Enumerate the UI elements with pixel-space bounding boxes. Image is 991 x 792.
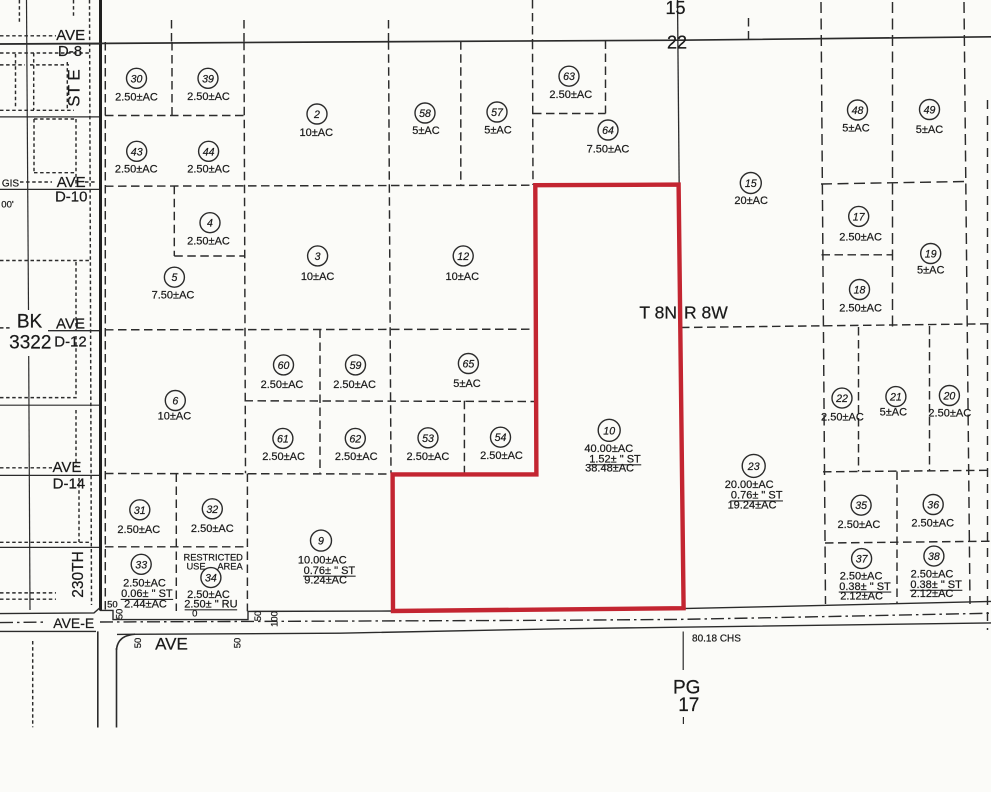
svg-text:10±AC: 10±AC — [300, 127, 334, 139]
svg-text:33: 33 — [135, 559, 147, 571]
svg-text:AVE: AVE — [52, 459, 81, 476]
svg-text:230TH: 230TH — [70, 551, 87, 598]
svg-text:50: 50 — [232, 638, 243, 649]
svg-text:R 8W: R 8W — [684, 303, 728, 323]
svg-text:65: 65 — [463, 359, 475, 371]
svg-text:2.12±AC: 2.12±AC — [911, 588, 954, 600]
svg-text:100: 100 — [269, 611, 280, 627]
svg-text:43: 43 — [131, 146, 143, 158]
svg-text:57: 57 — [491, 107, 504, 119]
svg-text:6: 6 — [172, 396, 178, 408]
svg-text:0: 0 — [192, 609, 197, 620]
svg-text:17: 17 — [853, 211, 866, 223]
svg-text:38.48±AC: 38.48±AC — [585, 463, 634, 475]
svg-text:2.12±AC: 2.12±AC — [840, 591, 883, 603]
svg-text:2.50±AC: 2.50±AC — [549, 89, 592, 101]
svg-text:50: 50 — [115, 609, 126, 620]
svg-text:2.50±AC: 2.50±AC — [187, 164, 230, 176]
svg-text:2.50±AC: 2.50±AC — [928, 407, 971, 419]
svg-text:64: 64 — [602, 125, 614, 137]
svg-text:3322: 3322 — [9, 333, 51, 354]
svg-text:38: 38 — [928, 551, 940, 563]
svg-text:21: 21 — [889, 392, 902, 404]
svg-text:2.50±AC: 2.50±AC — [115, 164, 158, 176]
svg-text:20: 20 — [943, 391, 956, 403]
svg-text:10±AC: 10±AC — [446, 271, 480, 283]
svg-text:15: 15 — [745, 178, 757, 190]
svg-text:10±AC: 10±AC — [301, 271, 335, 283]
svg-text:15: 15 — [665, 0, 685, 18]
svg-text:2.50±AC: 2.50±AC — [117, 524, 160, 536]
svg-text:AVE: AVE — [155, 635, 188, 654]
svg-text:62: 62 — [349, 433, 361, 445]
svg-text:AVE: AVE — [56, 27, 85, 44]
svg-text:5±AC: 5±AC — [842, 123, 869, 135]
svg-text:9: 9 — [318, 536, 324, 548]
svg-text:AREA: AREA — [217, 562, 243, 572]
svg-text:5: 5 — [171, 272, 177, 284]
svg-text:53: 53 — [422, 433, 434, 445]
svg-text:2.50±AC: 2.50±AC — [191, 523, 234, 535]
svg-text:2.50±AC: 2.50±AC — [261, 379, 304, 391]
svg-text:39: 39 — [202, 73, 214, 85]
svg-text:20±AC: 20±AC — [734, 195, 768, 207]
svg-text:19: 19 — [925, 249, 937, 261]
svg-text:10±AC: 10±AC — [158, 411, 192, 423]
svg-text:2.50±AC: 2.50±AC — [821, 411, 864, 423]
svg-text:5±AC: 5±AC — [880, 407, 907, 419]
svg-text:2.50±AC: 2.50±AC — [333, 379, 376, 391]
svg-text:5±AC: 5±AC — [917, 265, 944, 277]
svg-text:2.50±AC: 2.50±AC — [335, 451, 378, 463]
svg-text:5±AC: 5±AC — [412, 125, 439, 137]
svg-text:80.18 CHS: 80.18 CHS — [692, 633, 741, 644]
svg-text:10: 10 — [603, 425, 615, 437]
svg-text:2.50±AC: 2.50±AC — [480, 450, 523, 462]
svg-text:36: 36 — [927, 500, 939, 512]
svg-text:12: 12 — [457, 251, 469, 263]
svg-text:7.50±AC: 7.50±AC — [152, 290, 195, 302]
svg-text:2.50±AC: 2.50±AC — [838, 519, 881, 531]
svg-text:D-14: D-14 — [53, 475, 86, 492]
svg-text:2.50±AC: 2.50±AC — [262, 451, 305, 463]
svg-text:50: 50 — [133, 638, 144, 649]
svg-text:D-12: D-12 — [54, 334, 87, 351]
svg-text:22: 22 — [835, 393, 848, 405]
svg-text:60: 60 — [278, 360, 290, 372]
svg-text:32: 32 — [206, 504, 218, 516]
svg-text:AVE: AVE — [56, 315, 85, 332]
svg-text:9.24±AC: 9.24±AC — [304, 575, 347, 587]
svg-text:31: 31 — [134, 505, 146, 517]
svg-text:2.44±AC: 2.44±AC — [124, 599, 167, 611]
svg-text:37: 37 — [856, 554, 869, 566]
svg-text:49: 49 — [924, 105, 936, 117]
svg-text:T 8N: T 8N — [639, 303, 677, 323]
svg-text:7.50±AC: 7.50±AC — [587, 144, 630, 156]
svg-text:ST E: ST E — [65, 69, 84, 106]
svg-text:D-8: D-8 — [58, 43, 82, 60]
svg-text:D-10: D-10 — [55, 189, 88, 206]
svg-text:19.24±AC: 19.24±AC — [728, 500, 777, 512]
svg-text:2.50±AC: 2.50±AC — [839, 303, 882, 315]
svg-text:5±AC: 5±AC — [484, 125, 511, 137]
svg-text:58: 58 — [419, 108, 431, 120]
svg-text:USE: USE — [186, 562, 205, 572]
svg-text:44: 44 — [203, 146, 215, 158]
svg-text:4: 4 — [207, 218, 213, 230]
svg-text:00': 00' — [1, 200, 14, 211]
svg-text:61: 61 — [277, 433, 289, 445]
svg-text:54: 54 — [495, 432, 507, 444]
svg-text:34: 34 — [205, 573, 217, 585]
svg-text:2: 2 — [313, 109, 320, 121]
svg-text:GIS: GIS — [2, 179, 20, 190]
svg-text:23: 23 — [747, 461, 760, 473]
svg-text:AVE-E: AVE-E — [53, 615, 94, 631]
svg-text:18: 18 — [854, 285, 866, 297]
svg-text:48: 48 — [852, 105, 864, 117]
svg-text:2.50±AC: 2.50±AC — [839, 231, 882, 243]
svg-text:2.50±AC: 2.50±AC — [187, 236, 230, 248]
svg-text:BK: BK — [17, 312, 43, 333]
svg-text:2.50±AC: 2.50±AC — [187, 91, 230, 103]
svg-text:2.50±AC: 2.50±AC — [911, 518, 954, 530]
svg-text:63: 63 — [563, 71, 575, 83]
svg-text:59: 59 — [350, 360, 362, 372]
svg-text:5±AC: 5±AC — [916, 124, 943, 136]
svg-text:30: 30 — [131, 73, 143, 85]
svg-text:2.50±AC: 2.50±AC — [115, 91, 158, 103]
svg-text:35: 35 — [855, 500, 867, 512]
svg-text:3: 3 — [315, 251, 321, 263]
svg-text:17: 17 — [678, 695, 699, 716]
svg-text:5±AC: 5±AC — [453, 378, 480, 390]
svg-text:2.50±AC: 2.50±AC — [407, 451, 450, 463]
svg-text:50: 50 — [253, 611, 264, 622]
svg-text:22: 22 — [667, 33, 687, 53]
